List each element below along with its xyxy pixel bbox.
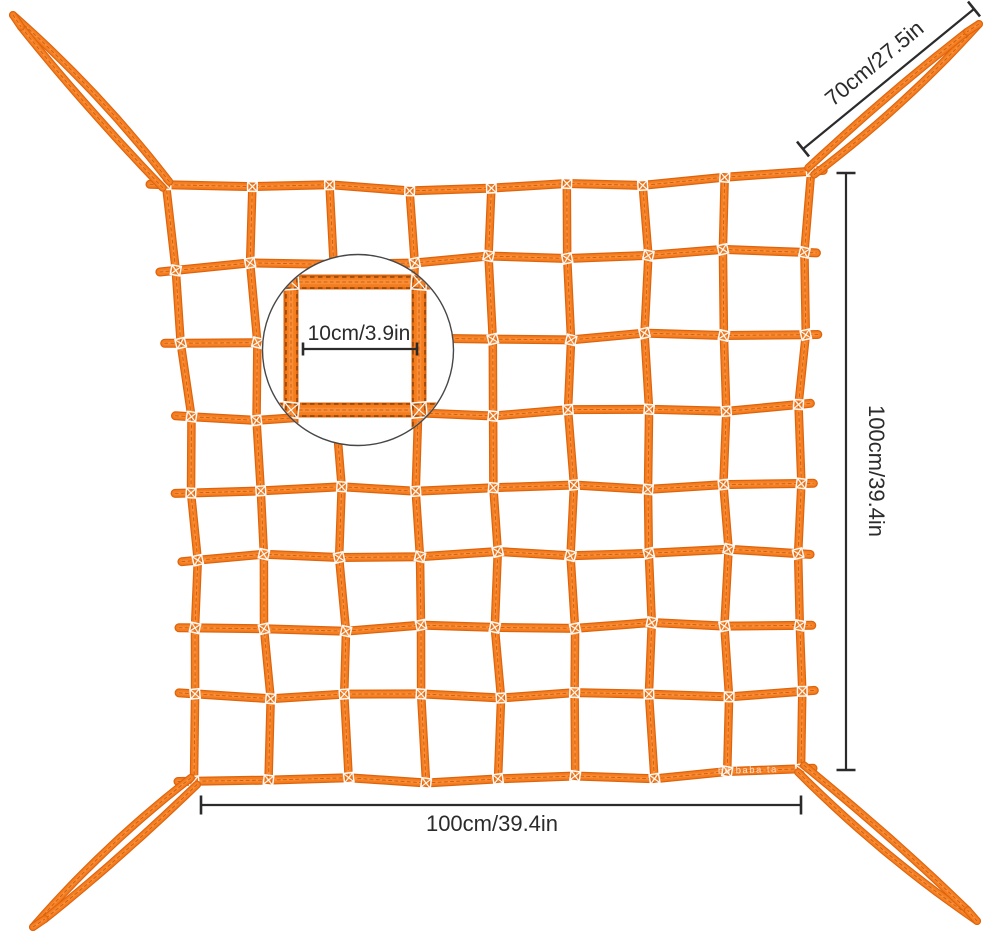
mesh-size-label: 10cm/3.9in <box>308 322 411 345</box>
loop-strap <box>21 27 163 188</box>
product-image: 70cm/27.5in 100cm/39.4in 100cm/39.4in 10… <box>0 0 1000 935</box>
magnifier-detail <box>262 254 454 446</box>
loop-strap <box>45 785 197 920</box>
vertical-strap <box>798 171 811 769</box>
vertical-strap <box>250 187 271 781</box>
cargo-net-grid <box>150 166 823 788</box>
cargo-net-diagram: 70cm/27.5in 100cm/39.4in 100cm/39.4in 10… <box>0 0 1000 935</box>
net-height-label: 100cm/39.4in <box>864 405 889 537</box>
net-width-label: 100cm/39.4in <box>426 811 558 836</box>
dimension-line <box>837 173 856 770</box>
loop-strap <box>804 765 968 910</box>
dimension-line <box>797 2 980 157</box>
vertical-strap <box>723 177 729 771</box>
watermark-text: bd baba ta <box>718 764 778 777</box>
